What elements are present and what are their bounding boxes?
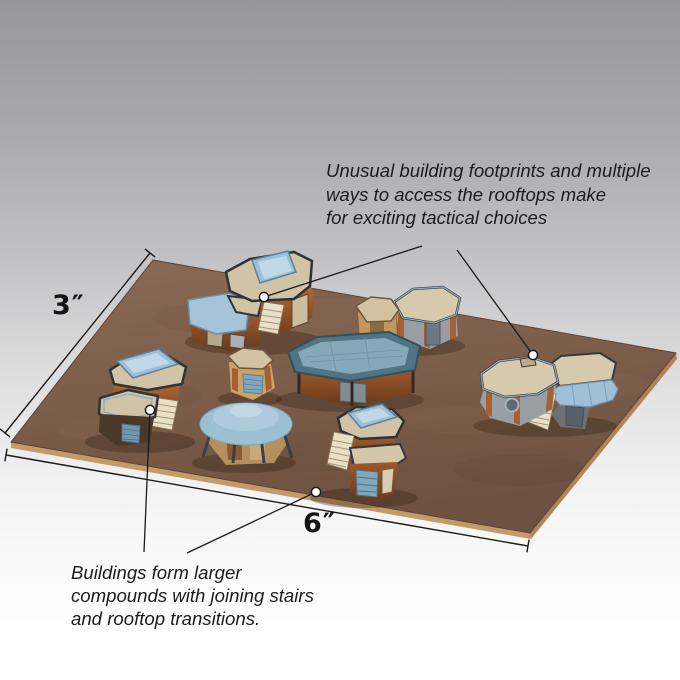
leader-line-south (187, 492, 316, 553)
annotation-compounds: Buildings form larger compounds with joi… (71, 561, 314, 630)
callout-marker (145, 405, 154, 414)
annotation-tactical: Unusual building footprints and multiple… (326, 159, 651, 230)
callout-marker (259, 292, 268, 301)
dimension-label-width: 6″ (303, 508, 336, 539)
building-east-compound (473, 353, 618, 437)
annotation-line: Buildings form larger (71, 561, 314, 584)
annotation-line: Unusual building footprints and multiple (326, 159, 651, 183)
callout-marker (311, 487, 320, 496)
tick (145, 249, 155, 257)
building-north-compound (185, 251, 325, 355)
annotation-line: ways to access the rooftops make (326, 183, 651, 207)
callout-marker (528, 350, 537, 359)
annotation-line: and rooftop transitions. (71, 607, 314, 630)
annotation-line: for exciting tactical choices (326, 206, 651, 230)
porthole (506, 399, 519, 412)
annotation-line: compounds with joining stairs (71, 584, 314, 607)
building-dome (192, 403, 296, 473)
blue-cabinet (356, 470, 378, 497)
dimension-label-depth: 3″ (52, 290, 85, 321)
marketing-figure: Unusual building footprints and multiple… (0, 0, 680, 680)
tick (0, 429, 10, 437)
